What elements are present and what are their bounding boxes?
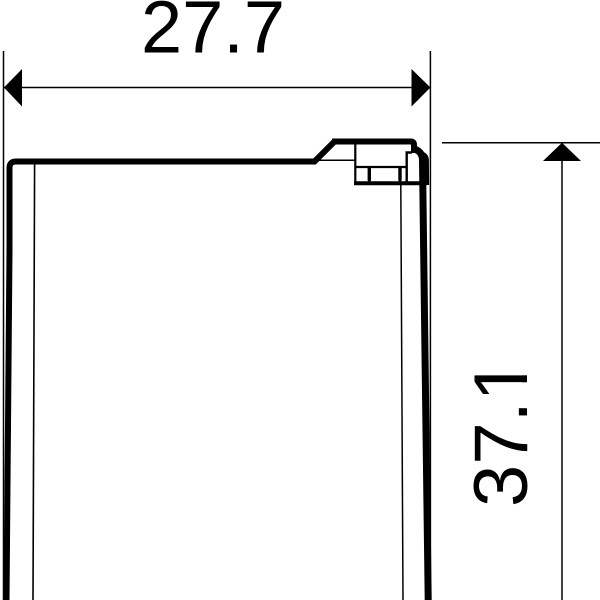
svg-text:37.1: 37.1 [459, 359, 544, 507]
svg-text:27.7: 27.7 [141, 0, 285, 69]
